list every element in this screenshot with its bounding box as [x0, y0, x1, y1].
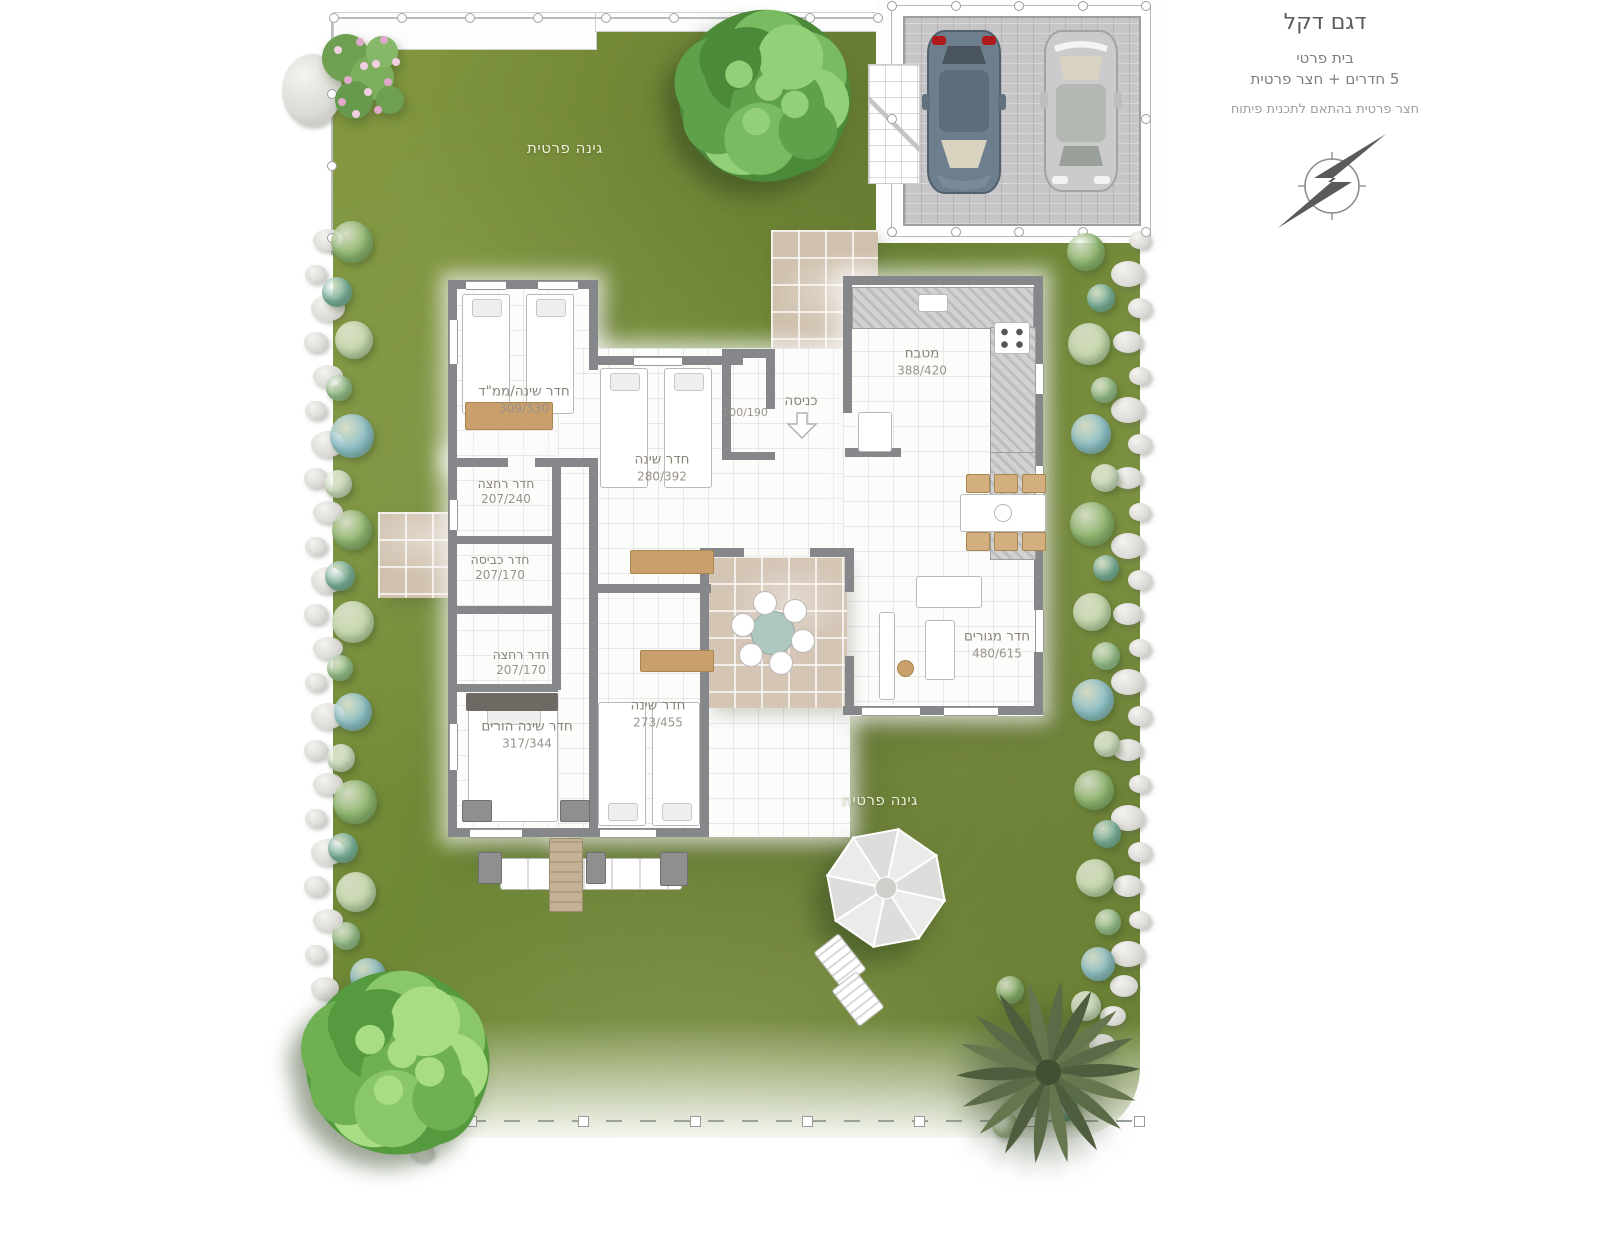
rock-right — [1111, 261, 1145, 287]
wall — [845, 548, 854, 592]
outdoor-side-table — [660, 852, 688, 886]
room-label-bath-2: חדר רחצה 207/170 — [493, 647, 550, 679]
wall — [722, 452, 775, 460]
room-label-parents: חדר שינה הורים 317/344 — [481, 718, 572, 751]
parking-fence-post — [1078, 1, 1088, 11]
bush-right — [1070, 502, 1114, 546]
rock-right — [1111, 397, 1145, 423]
garden-label-bottom: גינה פרטית — [842, 791, 918, 809]
wall — [589, 462, 598, 592]
patio-chair — [769, 651, 793, 675]
rock-right — [1111, 941, 1145, 967]
site-plan: חדר שינה/ממ"ד 309/330 חדר שינה 280/392 1… — [0, 0, 1600, 1255]
wall — [589, 588, 598, 837]
rock-right — [1128, 570, 1152, 590]
wall — [843, 276, 1043, 285]
fence-post — [601, 13, 611, 23]
bush-left — [336, 872, 376, 912]
rock-right — [1113, 331, 1143, 353]
parking-fence-post — [887, 1, 897, 11]
bush-left — [326, 375, 352, 401]
wardrobe — [466, 693, 558, 711]
room-dims: 317/344 — [481, 736, 572, 752]
room-label-bath-1: חדר רחצה 207/240 — [478, 476, 535, 508]
parking-fence-post — [1141, 1, 1151, 11]
fence-post-square — [914, 1116, 925, 1127]
bush-right — [1067, 233, 1105, 271]
bush-left — [327, 744, 355, 772]
wall — [843, 349, 852, 413]
rock-left — [304, 876, 328, 896]
north-compass-icon — [1268, 132, 1388, 232]
bush-right — [1068, 323, 1110, 365]
window — [600, 829, 656, 838]
window — [1035, 364, 1044, 394]
rock-right — [1128, 706, 1152, 726]
rock-right — [1129, 775, 1151, 793]
rock-left — [305, 537, 327, 555]
window — [449, 320, 458, 364]
bush-left — [324, 470, 352, 498]
window — [1035, 610, 1044, 652]
room-label-laundry: חדר כביסה 207/170 — [471, 552, 530, 584]
bush-left — [325, 561, 355, 591]
bush-left — [335, 321, 373, 359]
room-label-mamad: חדר שינה/ממ"ד 309/330 — [478, 383, 569, 416]
dresser — [630, 550, 714, 574]
dining-chair — [966, 532, 990, 551]
room-dims: 207/170 — [493, 663, 550, 679]
bush-right — [1076, 859, 1114, 897]
palm-tree — [947, 971, 1149, 1173]
room-label-kitchen: מטבח 388/420 — [897, 345, 947, 378]
window — [944, 707, 998, 716]
wall — [589, 584, 711, 593]
patio-chair — [739, 643, 763, 667]
room-dims: 207/170 — [471, 568, 530, 584]
bush-right — [1091, 464, 1119, 492]
window — [634, 357, 682, 366]
wall — [448, 606, 558, 614]
rock-right — [1111, 533, 1145, 559]
parking-fence-post — [1014, 227, 1024, 237]
tree — [653, 0, 877, 208]
pillow — [536, 299, 566, 317]
bush-left — [332, 601, 374, 643]
car-silver-icon — [1040, 28, 1122, 194]
rock-right — [1129, 367, 1151, 385]
patio-chair — [731, 613, 755, 637]
sofa — [916, 576, 982, 608]
pillow — [662, 803, 692, 821]
rock-right — [1129, 503, 1151, 521]
room-name: חדר כביסה — [471, 552, 530, 568]
pillow — [608, 803, 638, 821]
wall — [722, 349, 731, 457]
room-name: חדר שינה/ממ"ד — [478, 383, 569, 401]
rock-right — [1129, 911, 1151, 929]
plan-subtitle-rooms: 5 חדרים + חצר פרטית — [1180, 70, 1470, 88]
plan-subtitle-type: בית פרטי — [1180, 49, 1470, 67]
bush-right — [1095, 909, 1121, 935]
rock-left — [304, 332, 328, 352]
dining-chair — [1022, 474, 1046, 493]
wall — [845, 656, 854, 715]
bush-right — [1087, 284, 1115, 312]
title-block: דגם דקל בית פרטי 5 חדרים + חצר פרטית חצר… — [1180, 10, 1470, 117]
room-name: חדר רחצה — [493, 647, 550, 663]
parking-fence-post — [1141, 114, 1151, 124]
wall — [843, 276, 852, 358]
floor-mat — [560, 800, 590, 822]
window — [466, 281, 506, 290]
rock-left — [304, 604, 328, 624]
fence-post-square — [578, 1116, 589, 1127]
bush-left — [330, 414, 374, 458]
armchair — [925, 620, 955, 680]
bush-right — [1071, 414, 1111, 454]
room-name: חדר שינה הורים — [481, 718, 572, 736]
fence-post — [533, 13, 543, 23]
dining-chair — [994, 532, 1018, 551]
kitchen-sink — [918, 294, 948, 312]
window — [862, 707, 920, 716]
room-dims: 309/330 — [478, 401, 569, 417]
room-dims: 100/190 — [722, 406, 768, 420]
rock-right — [1128, 434, 1152, 454]
car-dark-icon — [922, 28, 1006, 198]
stove — [994, 322, 1030, 354]
bush-left — [334, 693, 372, 731]
rock-left — [305, 673, 327, 691]
rock-right — [1113, 875, 1143, 897]
bush-right — [1092, 642, 1120, 670]
bush-left — [333, 780, 377, 824]
wood-walkway — [549, 838, 583, 912]
plan-title: דגם דקל — [1180, 10, 1470, 35]
parking-fence-post — [1141, 227, 1151, 237]
rock-right — [1128, 842, 1152, 862]
bush-left — [331, 221, 373, 263]
patio-chair — [753, 591, 777, 615]
wall — [448, 458, 508, 467]
rock-right — [1128, 298, 1152, 318]
parking-fence-post — [951, 227, 961, 237]
room-name: חדר מגורים — [964, 628, 1030, 646]
window — [449, 724, 458, 770]
parking-fence-post — [951, 1, 961, 11]
wall — [766, 349, 775, 409]
rock-left — [305, 401, 327, 419]
outdoor-side-table — [586, 852, 606, 884]
room-dims: 273/455 — [631, 715, 686, 731]
room-name: חדר שינה — [635, 451, 690, 469]
entrance-text: כניסה — [784, 393, 817, 411]
rock-left — [304, 740, 328, 760]
tree — [278, 943, 517, 1182]
wall — [552, 462, 561, 690]
dining-chair — [994, 474, 1018, 493]
parking-fence-post — [887, 227, 897, 237]
pillow — [674, 373, 704, 391]
bush-left — [328, 833, 358, 863]
fridge — [858, 412, 892, 452]
room-label-living: חדר מגורים 480/615 — [964, 628, 1030, 661]
dining-chair — [966, 474, 990, 493]
parking-fence-post — [887, 114, 897, 124]
room-dims: 207/240 — [478, 492, 535, 508]
room-label-bath-guest: 100/190 — [722, 406, 768, 420]
fence-post-square — [802, 1116, 813, 1127]
room-dims: 280/392 — [635, 469, 690, 485]
room-dims: 480/615 — [964, 646, 1030, 662]
plant-pot — [897, 660, 914, 677]
table-centerpiece — [994, 504, 1012, 522]
wall — [448, 536, 558, 544]
patio-chair — [783, 599, 807, 623]
entry-arrow-down-icon — [786, 412, 818, 439]
bush-right — [1093, 820, 1121, 848]
pillow — [610, 373, 640, 391]
room-label-bedroom-2: חדר שינה 280/392 — [635, 451, 690, 484]
room-name: חדר שינה — [631, 697, 686, 715]
room-label-bedroom-3: חדר שינה 273/455 — [631, 697, 686, 730]
bush-right — [1094, 731, 1120, 757]
pillow — [472, 299, 502, 317]
bush-left — [332, 510, 372, 550]
room-name: חדר רחצה — [478, 476, 535, 492]
fence-post — [327, 161, 337, 171]
tv-cabinet — [879, 612, 895, 700]
room-name: מטבח — [897, 345, 947, 363]
bush-right — [1072, 679, 1114, 721]
rock-right — [1111, 669, 1145, 695]
garden-label-top: גינה פרטית — [527, 139, 603, 157]
rock-right — [1129, 639, 1151, 657]
dresser — [640, 650, 714, 672]
rock-left — [305, 809, 327, 827]
flower-bush — [312, 22, 412, 132]
room-dims: 388/420 — [897, 363, 947, 379]
rock-right — [1113, 603, 1143, 625]
bush-left — [327, 655, 353, 681]
window — [538, 281, 578, 290]
bush-right — [1093, 555, 1119, 581]
bush-right — [1091, 377, 1117, 403]
fence-post-square — [690, 1116, 701, 1127]
bush-right — [1073, 593, 1111, 631]
outdoor-side-table — [478, 852, 502, 884]
side-patio — [378, 512, 454, 598]
fence-post — [465, 13, 475, 23]
bush-left — [322, 277, 352, 307]
patio-chair — [791, 629, 815, 653]
wall — [448, 684, 558, 692]
rock-left — [305, 265, 327, 283]
bush-right — [1074, 770, 1114, 810]
entrance-label: כניסה — [784, 393, 817, 411]
dining-chair — [1022, 532, 1046, 551]
floor-mat — [462, 800, 492, 822]
plan-note: חצר פרטית בהתאם לתכנית פיתוח — [1180, 102, 1470, 117]
wall — [535, 458, 598, 467]
window — [470, 829, 522, 838]
parking-fence-post — [1014, 1, 1024, 11]
window — [449, 500, 458, 530]
